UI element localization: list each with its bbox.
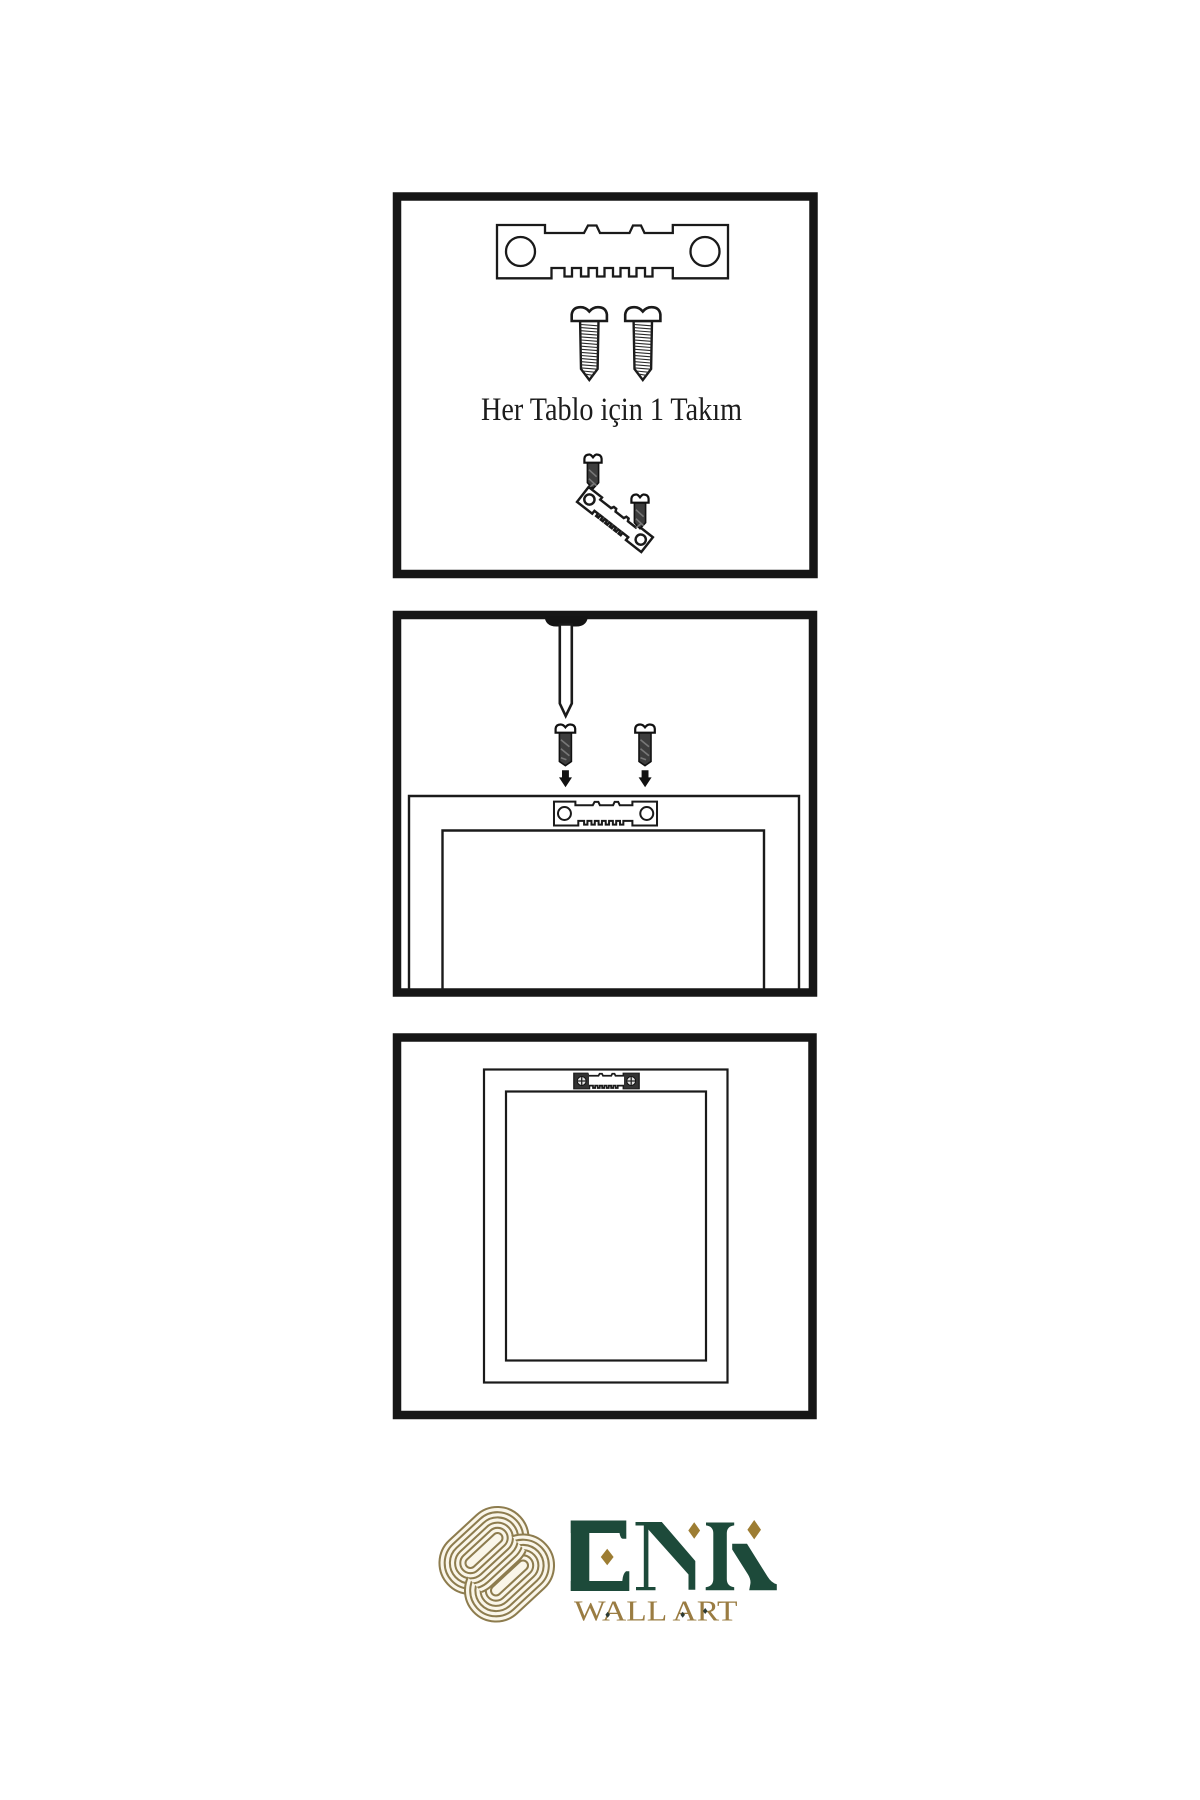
svg-text:WALL ART: WALL ART <box>574 1596 738 1628</box>
svg-text:Her Tablo için 1 Takım: Her Tablo için 1 Takım <box>481 392 742 428</box>
